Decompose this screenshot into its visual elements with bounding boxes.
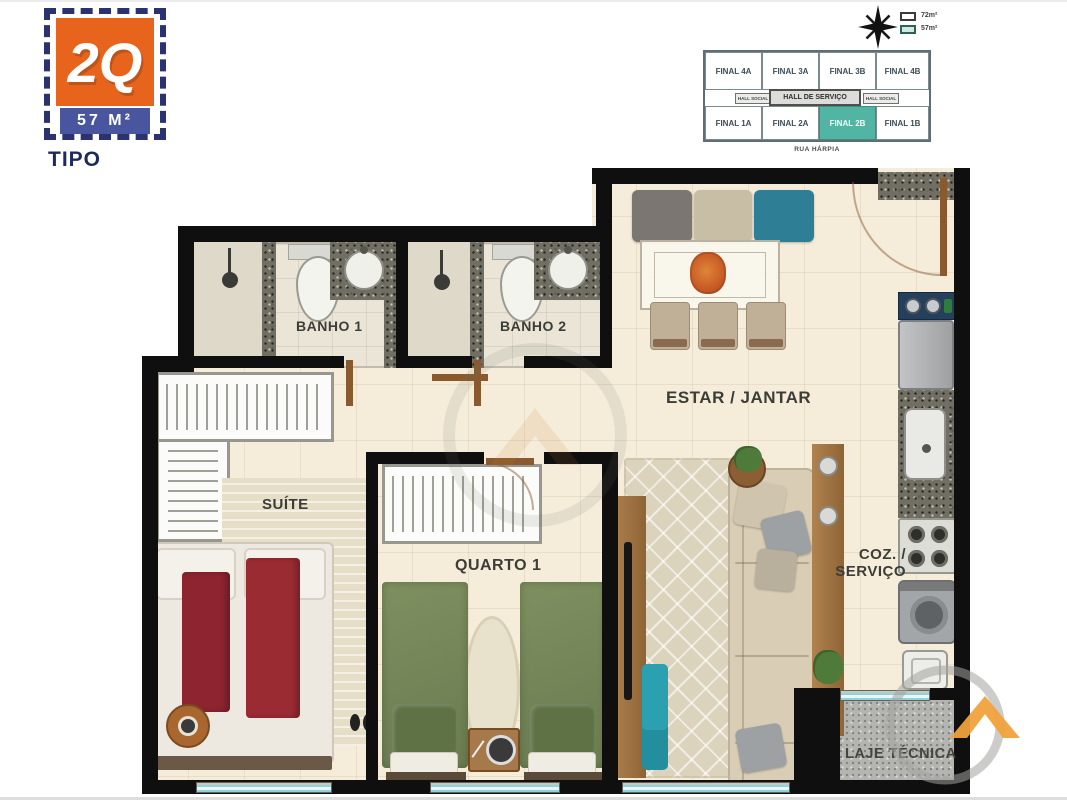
keyplan-unit-final-3b: FINAL 3B: [819, 52, 876, 90]
quarto1-nightstand: [468, 728, 520, 772]
wall-segment: [366, 452, 378, 794]
keyplan-unit-final-1b: FINAL 1B: [876, 106, 929, 140]
keyplan-unit-final-2a: FINAL 2A: [762, 106, 819, 140]
quarto1-pillow-left: [392, 704, 456, 756]
room-label-coz-servico: COZ. / SERVIÇO: [824, 546, 906, 580]
street-label: RUA HÁRPIA: [703, 146, 931, 153]
sink-banho1: [344, 250, 384, 290]
badge-text: 2Q: [68, 30, 143, 95]
dining-chair: [746, 302, 786, 350]
legend-swatch-72: [900, 12, 916, 21]
keyplan-unit-final-4a: FINAL 4A: [705, 52, 762, 90]
suite-bed-foot-frame: [152, 756, 332, 770]
floorplan-page: 2Q 57 M² TIPO 72m² 57m² FINAL 4A FINAL 3…: [0, 0, 1067, 800]
unit-type-badge: 2Q: [56, 18, 154, 106]
sink-banho2: [548, 250, 588, 290]
window-living: [622, 782, 790, 793]
suite-red-throw: [246, 558, 300, 718]
keyplan-unit-final-2b-highlighted: FINAL 2B: [819, 106, 876, 140]
dining-chair: [650, 302, 690, 350]
dining-bench-cushion-gray: [632, 190, 692, 242]
wall-segment: [592, 168, 878, 184]
suite-closet-horizontal: [156, 372, 334, 442]
keyplan-hall-social-left: HALL SOCIAL: [735, 93, 771, 104]
sofa-cushion: [735, 722, 788, 773]
room-label-suite: SUÍTE: [262, 496, 309, 513]
coz-label-line2: SERVIÇO: [824, 563, 906, 580]
outside-area: [142, 168, 592, 226]
banho1-door: [346, 360, 353, 406]
faucet-banho2: [564, 246, 572, 254]
plant: [734, 446, 762, 472]
area-band: 57 M²: [60, 108, 150, 134]
dining-bench-cushion-beige: [694, 190, 752, 242]
keyplan-hall-servico: HALL DE SERVIÇO: [769, 89, 861, 106]
suite-side-table: [166, 704, 210, 748]
shower-icon: [440, 250, 443, 276]
slippers: [350, 714, 360, 731]
legend-label-57: 57m²: [921, 25, 937, 32]
tipo-caption: TIPO: [48, 148, 101, 172]
wall-segment: [396, 242, 408, 368]
faucet-banho1: [360, 246, 368, 254]
legend-swatch-57: [900, 25, 916, 34]
dining-bench-cushion-teal: [754, 190, 814, 242]
window-suite: [196, 782, 332, 793]
keyplan-unit-final-1a: FINAL 1A: [705, 106, 762, 140]
room-label-banho1: BANHO 1: [296, 318, 363, 334]
window-quarto1: [430, 782, 560, 793]
flower-centerpiece: [690, 252, 726, 294]
watermark-logo-corner: [872, 650, 1067, 798]
quarto1-pillow-right: [530, 704, 594, 756]
banho1-shower-partition: [262, 242, 276, 368]
wall-segment: [178, 226, 194, 372]
stove-cooktop: [898, 518, 956, 574]
outside-area: [142, 226, 178, 356]
keyplan-unit-final-4b: FINAL 4B: [876, 52, 929, 90]
keyplan: FINAL 4A FINAL 3A FINAL 3B FINAL 4B FINA…: [703, 50, 931, 142]
compass-icon: [856, 4, 900, 50]
shower-head-banho1: [222, 272, 238, 288]
coz-label-line1: COZ. /: [824, 546, 906, 563]
shower-head-banho2: [434, 274, 450, 290]
suite-red-throw: [182, 572, 230, 712]
wall-segment: [384, 242, 396, 368]
wall-segment: [794, 688, 840, 794]
wall-segment: [178, 226, 612, 242]
teal-ottoman: [642, 664, 668, 770]
keyplan-hall-social-right: HALL SOCIAL: [863, 93, 899, 104]
area-band-text: 57 M²: [77, 112, 133, 130]
room-label-quarto1: QUARTO 1: [455, 557, 541, 575]
wall-segment: [194, 356, 344, 368]
tv-icon: [624, 542, 632, 700]
sofa-cushion: [754, 548, 798, 592]
legend-label-72: 72m²: [921, 12, 937, 19]
entry-door: [940, 178, 947, 276]
kitchen-sink: [904, 408, 946, 480]
refrigerator: [898, 320, 954, 390]
watermark-logo: [420, 330, 650, 540]
washing-machine: [898, 580, 956, 644]
room-label-estar-jantar: ESTAR / JANTAR: [666, 388, 811, 408]
keyplan-unit-final-3a: FINAL 3A: [762, 52, 819, 90]
dining-chair: [698, 302, 738, 350]
wall-segment: [142, 356, 158, 794]
kitchen-counter-dark: [898, 292, 956, 320]
shower-icon: [228, 248, 231, 274]
